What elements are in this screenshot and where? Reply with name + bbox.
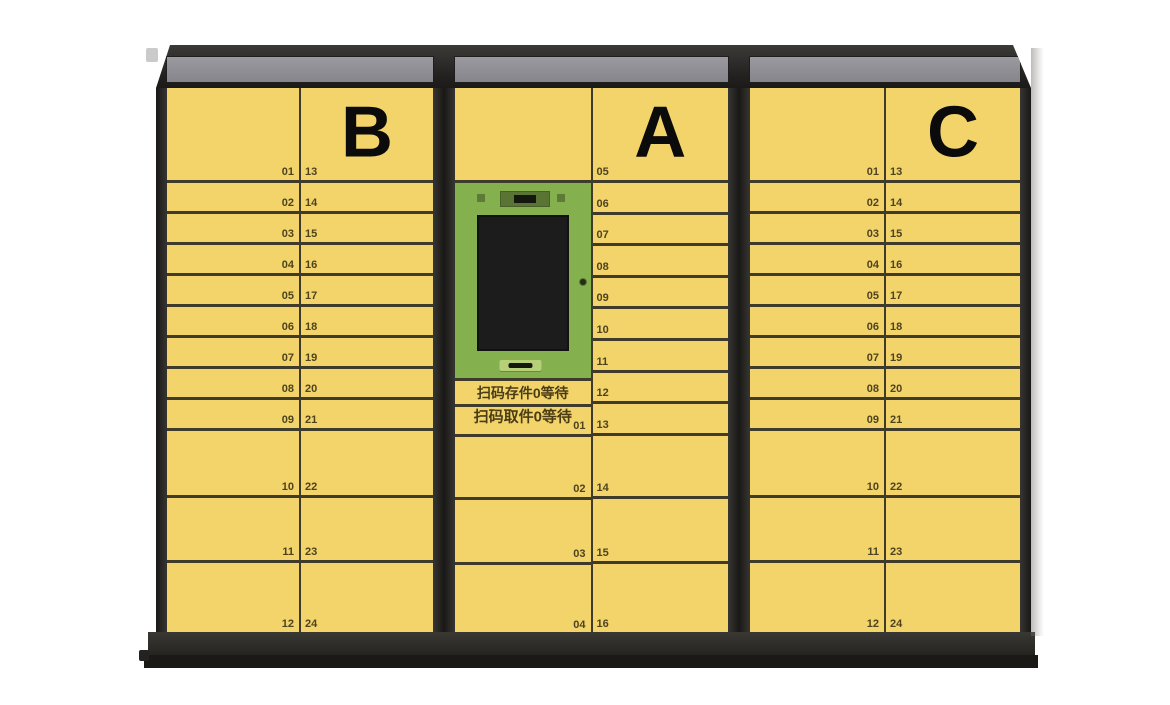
locker-door-B-13[interactable]: B13 [301,88,433,180]
door-number: 01 [573,420,585,432]
cabinet-b: 010203040506070809101112 B13141516171819… [156,45,444,632]
locker-door-B-12[interactable]: 12 [167,563,299,632]
door-number: 04 [282,259,294,271]
locker-door-A-06[interactable]: 06 [593,183,729,212]
locker-door-C-10[interactable]: 10 [750,431,884,495]
locker-door-A-12[interactable]: 12 [593,373,729,402]
door-number: 06 [867,321,879,333]
locker-door-A-02[interactable]: 02 [455,437,591,497]
locker-door-C-21[interactable]: 21 [886,400,1020,428]
locker-door-B-18[interactable]: 18 [301,307,433,335]
door-number: 01 [282,166,294,178]
locker-door-B-11[interactable]: 11 [167,498,299,560]
parcel-locker-scene: 010203040506070809101112 B13141516171819… [0,0,1170,705]
cabinet-a-doors: 扫码存件0等待扫码取件0等待01020304 A0506070809101112… [455,88,728,632]
locker-door-B-09[interactable]: 09 [167,400,299,428]
cabinet-c-doors: 010203040506070809101112 C13141516171819… [750,88,1020,632]
locker-door-A-07[interactable]: 07 [593,215,729,244]
door-number: 19 [305,352,317,364]
locker-door-C-11[interactable]: 11 [750,498,884,560]
door-number: 14 [305,197,317,209]
locker-door-B-19[interactable]: 19 [301,338,433,366]
camera-scanner [500,191,550,207]
locker-door-C-23[interactable]: 23 [886,498,1020,560]
locker-door-A-10[interactable]: 10 [593,309,729,338]
door-number: 16 [890,259,902,271]
locker-door-C-01[interactable]: 01 [750,88,884,180]
door-number: 05 [867,290,879,302]
cabinet-a-sign [444,45,739,88]
door-number: 14 [890,197,902,209]
door-number: 02 [867,197,879,209]
locker-door-B-15[interactable]: 15 [301,214,433,242]
cabinet-label-C: C [927,97,979,169]
door-number: 03 [573,548,585,560]
door-number: 13 [597,419,609,431]
door-number: 06 [597,198,609,210]
locker-door-C-13[interactable]: C13 [886,88,1020,180]
base-plinth [148,632,1035,655]
cabinet-b-doors: 010203040506070809101112 B13141516171819… [167,88,433,632]
door-number: 04 [867,259,879,271]
locker-door-A-15[interactable]: 15 [593,499,729,561]
background-smudge [146,48,158,62]
locker-door-B-14[interactable]: 14 [301,183,433,211]
locker-door-C-20[interactable]: 20 [886,369,1020,397]
keyhole-lock-icon [580,279,586,285]
door-number: 09 [282,414,294,426]
door-number: 08 [282,383,294,395]
door-number: 02 [573,483,585,495]
locker-door-B-22[interactable]: 22 [301,431,433,495]
door-number: 23 [890,546,902,558]
locker-door-C-17[interactable]: 17 [886,276,1020,304]
locker-door-A-13[interactable]: 13 [593,404,729,433]
door-number: 10 [867,481,879,493]
locker-door-C-12[interactable]: 12 [750,563,884,632]
door-column-right: B131415161718192021222324 [301,88,433,632]
door-number: 03 [282,228,294,240]
door-number: 20 [305,383,317,395]
door-number: 07 [597,229,609,241]
locker-door-C-07[interactable]: 07 [750,338,884,366]
door-number: 16 [305,259,317,271]
door-number: 17 [890,290,902,302]
door-number: 22 [305,481,317,493]
locker-door-B-21[interactable]: 21 [301,400,433,428]
locker-door-A-09[interactable]: 09 [593,278,729,307]
locker-door-A-11[interactable]: 11 [593,341,729,370]
kiosk-panel [455,183,591,378]
sign-lightbox [454,56,729,83]
scan-window-icon [508,363,532,368]
locker-door-A-03[interactable]: 03 [455,500,591,562]
locker-door-C-02[interactable]: 02 [750,183,884,211]
locker-door-C-05[interactable]: 05 [750,276,884,304]
door-number: 09 [867,414,879,426]
cabinet-a: 扫码存件0等待扫码取件0等待01020304 A0506070809101112… [444,45,739,632]
locker-door-B-24[interactable]: 24 [301,563,433,632]
led-indicator-icon [557,194,565,202]
door-number: 21 [890,414,902,426]
cabinet-c: 010203040506070809101112 C13141516171819… [739,45,1031,632]
door-number: 18 [890,321,902,333]
locker-door-B-03[interactable]: 03 [167,214,299,242]
door-number: 13 [890,166,902,178]
camera-lens-icon [514,195,536,203]
door-number: 24 [890,618,902,630]
locker-door-C-18[interactable]: 18 [886,307,1020,335]
door-number: 12 [282,618,294,630]
cabinet-a-frame: 扫码存件0等待扫码取件0等待01020304 A0506070809101112… [444,88,739,632]
locker-door-A-upper[interactable] [455,88,591,180]
door-number: 04 [573,619,585,631]
door-number: 02 [282,197,294,209]
door-column-left: 010203040506070809101112 [750,88,884,632]
door-number: 19 [890,352,902,364]
door-number: 18 [305,321,317,333]
door-number: 15 [305,228,317,240]
locker-door-C-04[interactable]: 04 [750,245,884,273]
door-number: 15 [890,228,902,240]
locker-door-B-05[interactable]: 05 [167,276,299,304]
locker-door-C-19[interactable]: 19 [886,338,1020,366]
locker-door-A-04[interactable]: 04 [455,565,591,632]
locker-door-B-23[interactable]: 23 [301,498,433,560]
door-number: 10 [597,324,609,336]
locker-door-A-05[interactable]: A05 [593,88,729,180]
locker-door-B-10[interactable]: 10 [167,431,299,495]
locker-door-C-08[interactable]: 08 [750,369,884,397]
door-number: 11 [282,546,294,558]
door-column-left: 010203040506070809101112 [167,88,299,632]
locker-door-C-22[interactable]: 22 [886,431,1020,495]
door-number: 07 [282,352,294,364]
door-number: 08 [597,261,609,273]
door-number: 11 [597,356,609,368]
door-number: 20 [890,383,902,395]
sign-lightbox [749,56,1021,83]
locker-door-B-04[interactable]: 04 [167,245,299,273]
door-number: 12 [597,387,609,399]
locker-door-B-17[interactable]: 17 [301,276,433,304]
door-number: 03 [867,228,879,240]
locker-door-C-16[interactable]: 16 [886,245,1020,273]
locker-door-B-01[interactable]: 01 [167,88,299,180]
locker-door-A-14[interactable]: 14 [593,436,729,496]
sign-lightbox [166,56,434,83]
locker-door-B-16[interactable]: 16 [301,245,433,273]
locker-door-B-02[interactable]: 02 [167,183,299,211]
door-number: 05 [282,290,294,302]
door-number: 11 [867,546,879,558]
locker-door-A-08[interactable]: 08 [593,246,729,275]
cabinet-c-sign [739,45,1031,88]
door-number: 22 [890,481,902,493]
door-number: 14 [597,482,609,494]
door-column-right: A050607080910111213141516 [593,88,729,632]
locker-door-B-08[interactable]: 08 [167,369,299,397]
locker-door-C-06[interactable]: 06 [750,307,884,335]
door-number: 13 [305,166,317,178]
locker-door-B-20[interactable]: 20 [301,369,433,397]
kiosk-touch-screen[interactable] [477,215,569,351]
locker-door-C-14[interactable]: 14 [886,183,1020,211]
door-number: 07 [867,352,879,364]
deposit-status-text: 扫码存件0等待 [455,383,591,403]
door-column-right: C131415161718192021222324 [886,88,1020,632]
cabinet-b-sign [156,45,444,88]
door-number: 08 [867,383,879,395]
base-left-foot [139,650,149,661]
door-number: 09 [597,292,609,304]
door-number: 23 [305,546,317,558]
locker-door-A-16[interactable]: 16 [593,564,729,632]
door-number: 15 [597,547,609,559]
deposit-status-strip: 扫码存件0等待 [455,381,591,404]
background-blur [1031,48,1044,636]
base-shadow [144,655,1038,668]
door-column-left: 扫码存件0等待扫码取件0等待01020304 [455,88,591,632]
locker-door-C-09[interactable]: 09 [750,400,884,428]
door-number: 12 [867,618,879,630]
locker-door-C-03[interactable]: 03 [750,214,884,242]
locker-door-B-07[interactable]: 07 [167,338,299,366]
door-number: 17 [305,290,317,302]
cabinet-label-A: A [634,97,686,169]
door-number: 06 [282,321,294,333]
locker-door-A-01[interactable]: 扫码取件0等待01 [455,407,591,434]
led-indicator-icon [477,194,485,202]
barcode-scan-slot[interactable] [499,360,541,371]
cabinet-c-frame: 010203040506070809101112 C13141516171819… [739,88,1031,632]
door-number: 05 [597,166,609,178]
door-number: 10 [282,481,294,493]
door-number: 01 [867,166,879,178]
cabinet-b-frame: 010203040506070809101112 B13141516171819… [156,88,444,632]
locker-door-C-15[interactable]: 15 [886,214,1020,242]
door-number: 21 [305,414,317,426]
locker-door-C-24[interactable]: 24 [886,563,1020,632]
cabinet-label-B: B [341,97,393,169]
door-number: 16 [597,618,609,630]
door-number: 24 [305,618,317,630]
pickup-status-text: 扫码取件0等待 [455,406,591,427]
locker-door-B-06[interactable]: 06 [167,307,299,335]
